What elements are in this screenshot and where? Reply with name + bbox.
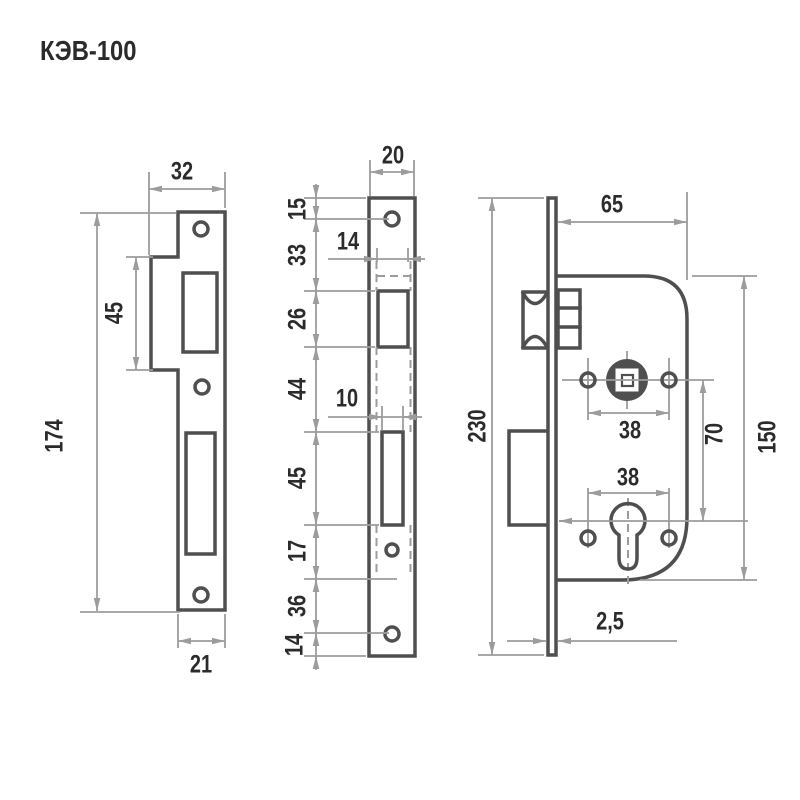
drawing-title: КЭВ-100	[40, 34, 137, 66]
screw-hole	[195, 380, 209, 394]
dim-label: 65	[601, 190, 623, 218]
dim-plate-thickness: 2,5	[507, 607, 677, 641]
strike-bolt-window	[186, 433, 215, 554]
dim-faceplate-height: 230	[463, 198, 544, 655]
dim-label: 150	[753, 420, 781, 453]
screw-hole	[194, 222, 208, 236]
strike-latch-window	[183, 273, 217, 352]
dim-label: 174	[40, 419, 68, 453]
dim-label: 33	[283, 244, 311, 266]
dim-cyl-screw-spacing: 38	[588, 463, 669, 493]
technical-drawing-kev-100: КЭВ-100 32 45 174	[0, 0, 800, 800]
dim-latch-width: 14	[328, 227, 425, 262]
dim-strike-notch: 45	[100, 257, 153, 370]
dim-label: 38	[619, 416, 641, 444]
dim-hub-screw-spacing: 38	[588, 413, 669, 444]
dim-label: 70	[700, 423, 728, 445]
deadbolt-side	[509, 431, 547, 525]
dim-label: 38	[617, 463, 639, 491]
screw-hole	[194, 588, 208, 602]
dim-label: 45	[283, 467, 311, 489]
dim-label: 230	[463, 409, 491, 442]
dim-label: 10	[336, 384, 358, 412]
cylinder-fix-hole	[386, 544, 398, 556]
dim-label: 44	[283, 378, 311, 401]
dim-label: 32	[171, 157, 193, 185]
dim-strike-height: 174	[40, 213, 180, 612]
latch-window	[378, 291, 408, 347]
dim-label: 36	[283, 595, 311, 617]
bolt-window	[382, 432, 403, 525]
dim-label: 45	[100, 302, 128, 324]
dim-body-depth: 65	[558, 190, 687, 280]
faceplate-view: 20 14 10	[280, 141, 425, 670]
strike-plate-view: 32 45 174 21	[40, 157, 225, 678]
dim-label: 14	[337, 227, 360, 255]
dim-label: 14	[280, 634, 308, 657]
dim-label: 26	[283, 308, 311, 330]
dim-label: 2,5	[596, 607, 624, 635]
dim-label: 20	[382, 141, 404, 169]
faceplate-edge	[548, 198, 556, 655]
dim-faceplate-width: 20	[370, 141, 414, 196]
latch-bolt-side	[523, 290, 580, 348]
drawing-sheet: КЭВ-100 32 45 174	[0, 0, 800, 800]
dim-strike-width-bottom: 21	[178, 614, 225, 678]
lock-body-view: 65 230 38 38 70 15	[463, 190, 781, 655]
dim-strike-width-top: 32	[149, 157, 225, 255]
dim-label: 17	[283, 540, 311, 562]
dim-label: 15	[283, 198, 311, 220]
screw-hole	[385, 627, 399, 641]
dim-label: 21	[190, 650, 212, 678]
dim-bolt-width: 10	[328, 384, 422, 430]
dim-faceplate-stack: 15 33 26 44 45 17 36 14	[280, 184, 397, 670]
